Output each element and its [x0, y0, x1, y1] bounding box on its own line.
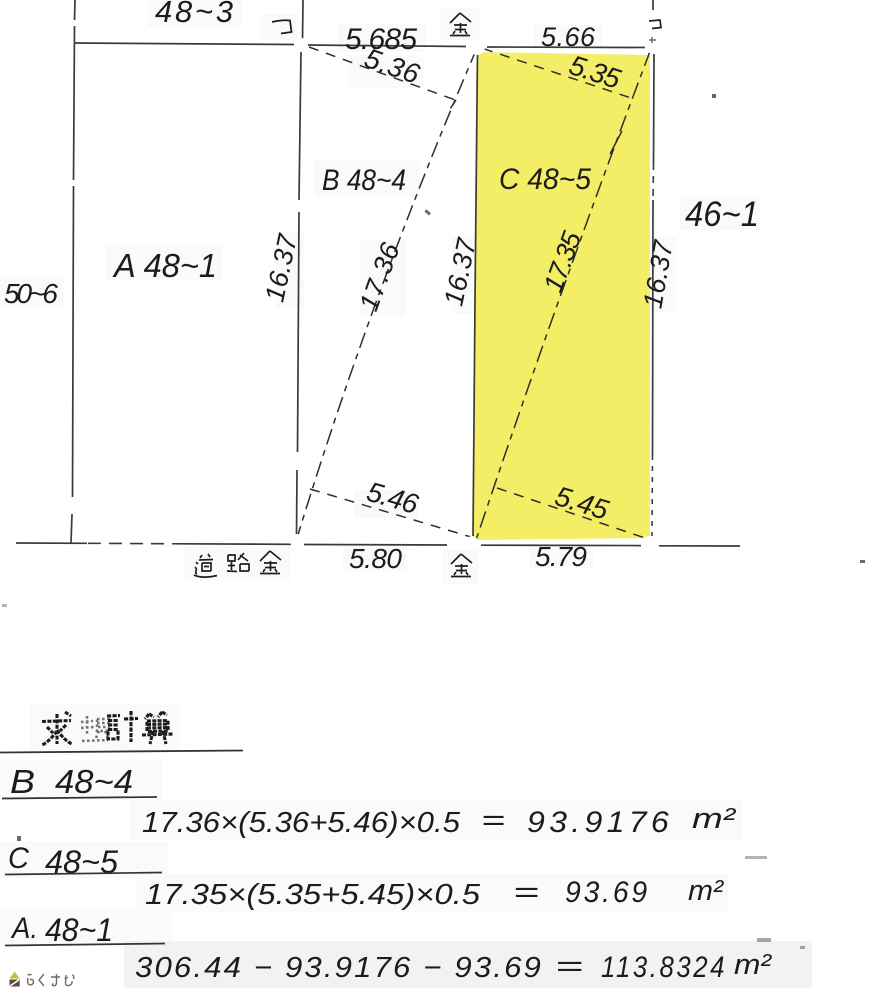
- svg-text:C: C: [8, 842, 29, 875]
- svg-text:A.: A.: [10, 912, 38, 945]
- svg-text:306.44 − 93.9176 − 93.69: 306.44 − 93.9176 − 93.69: [135, 952, 543, 984]
- svg-text:50~6: 50~6: [4, 278, 58, 309]
- svg-text:=: =: [481, 805, 505, 837]
- svg-text:m²: m²: [734, 949, 772, 981]
- svg-text:A 48~1: A 48~1: [112, 247, 217, 284]
- svg-text:B 48~4: B 48~4: [322, 164, 406, 197]
- svg-text:48~4: 48~4: [55, 763, 133, 800]
- svg-text:46~1: 46~1: [685, 195, 759, 234]
- svg-text:=: =: [513, 877, 539, 909]
- svg-text:5.66: 5.66: [541, 22, 596, 52]
- svg-text:93.9176: 93.9176: [527, 806, 673, 839]
- svg-text:m²: m²: [692, 803, 737, 835]
- svg-text:48~3: 48~3: [155, 0, 233, 29]
- svg-text:=: =: [555, 951, 583, 983]
- svg-text:17.35×(5.35+5.45)×0.5: 17.35×(5.35+5.45)×0.5: [145, 879, 481, 911]
- svg-text:113.8324: 113.8324: [601, 951, 727, 984]
- svg-text:m²: m²: [688, 875, 724, 907]
- svg-text:B: B: [10, 763, 35, 800]
- svg-text:48~1: 48~1: [45, 912, 113, 948]
- svg-text:C 48~5: C 48~5: [499, 163, 591, 196]
- svg-text:93.69: 93.69: [565, 876, 650, 909]
- svg-text:17.36×(5.36+5.46)×0.5: 17.36×(5.36+5.46)×0.5: [142, 807, 461, 839]
- svg-text:5.80: 5.80: [349, 543, 402, 574]
- svg-text:5.79: 5.79: [535, 541, 587, 572]
